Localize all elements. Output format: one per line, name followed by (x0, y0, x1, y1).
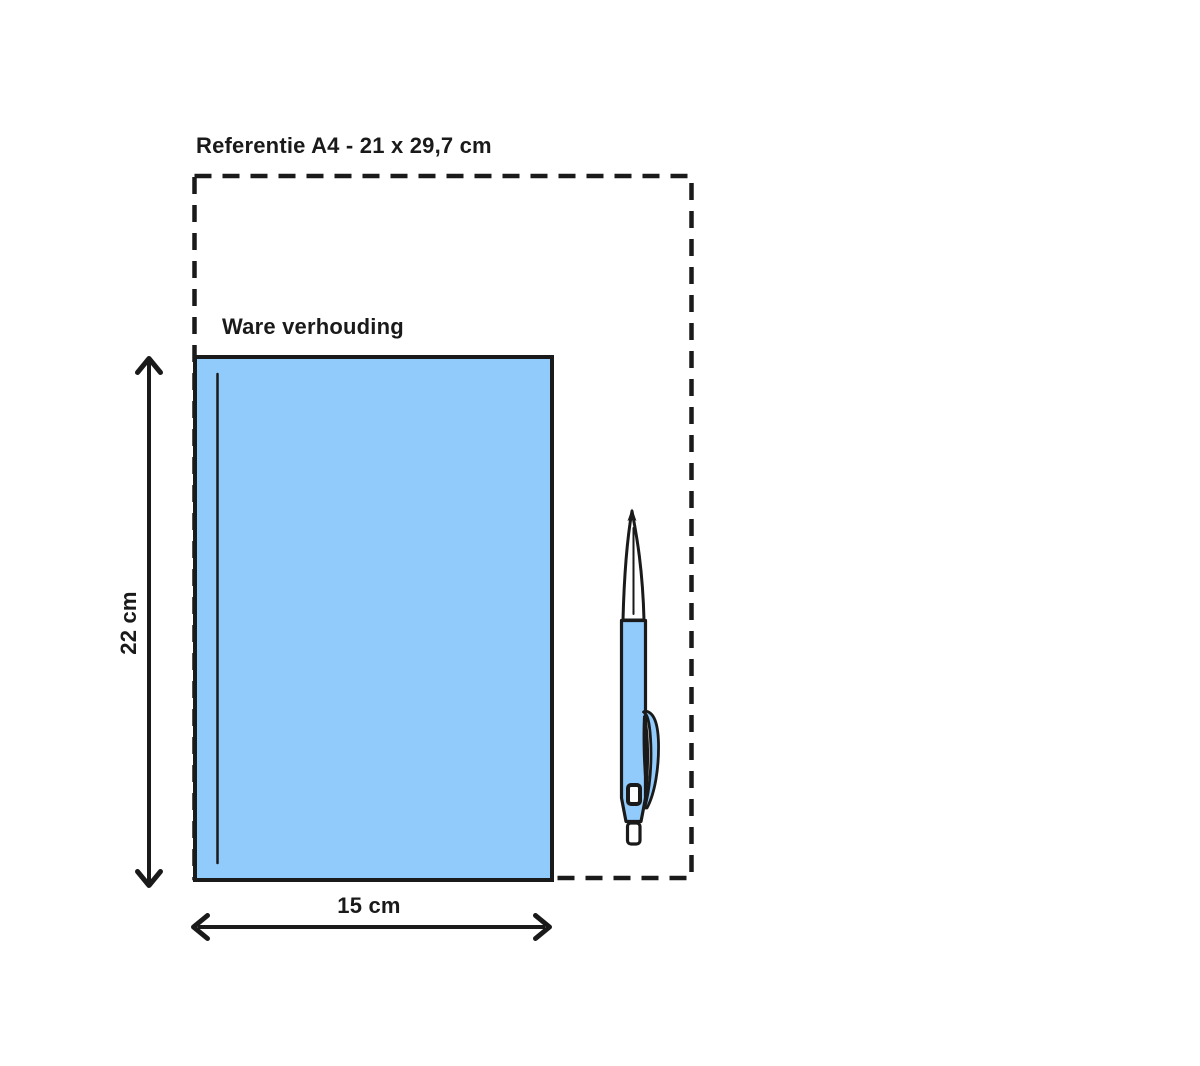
pen-push-button (628, 823, 641, 844)
diagram-graphics (0, 0, 1200, 1066)
height-dimension-label: 22 cm (116, 591, 142, 654)
pen-tip (628, 509, 637, 522)
width-dimension-label: 15 cm (337, 893, 400, 919)
pen-clip-slot (628, 785, 640, 804)
pen-icon (622, 509, 659, 845)
true-scale-label: Ware verhouding (222, 314, 404, 340)
size-comparison-diagram: Referentie A4 - 21 x 29,7 cm Ware verhou… (0, 0, 1200, 1066)
book-cover (195, 357, 552, 880)
reference-title: Referentie A4 - 21 x 29,7 cm (196, 133, 492, 159)
